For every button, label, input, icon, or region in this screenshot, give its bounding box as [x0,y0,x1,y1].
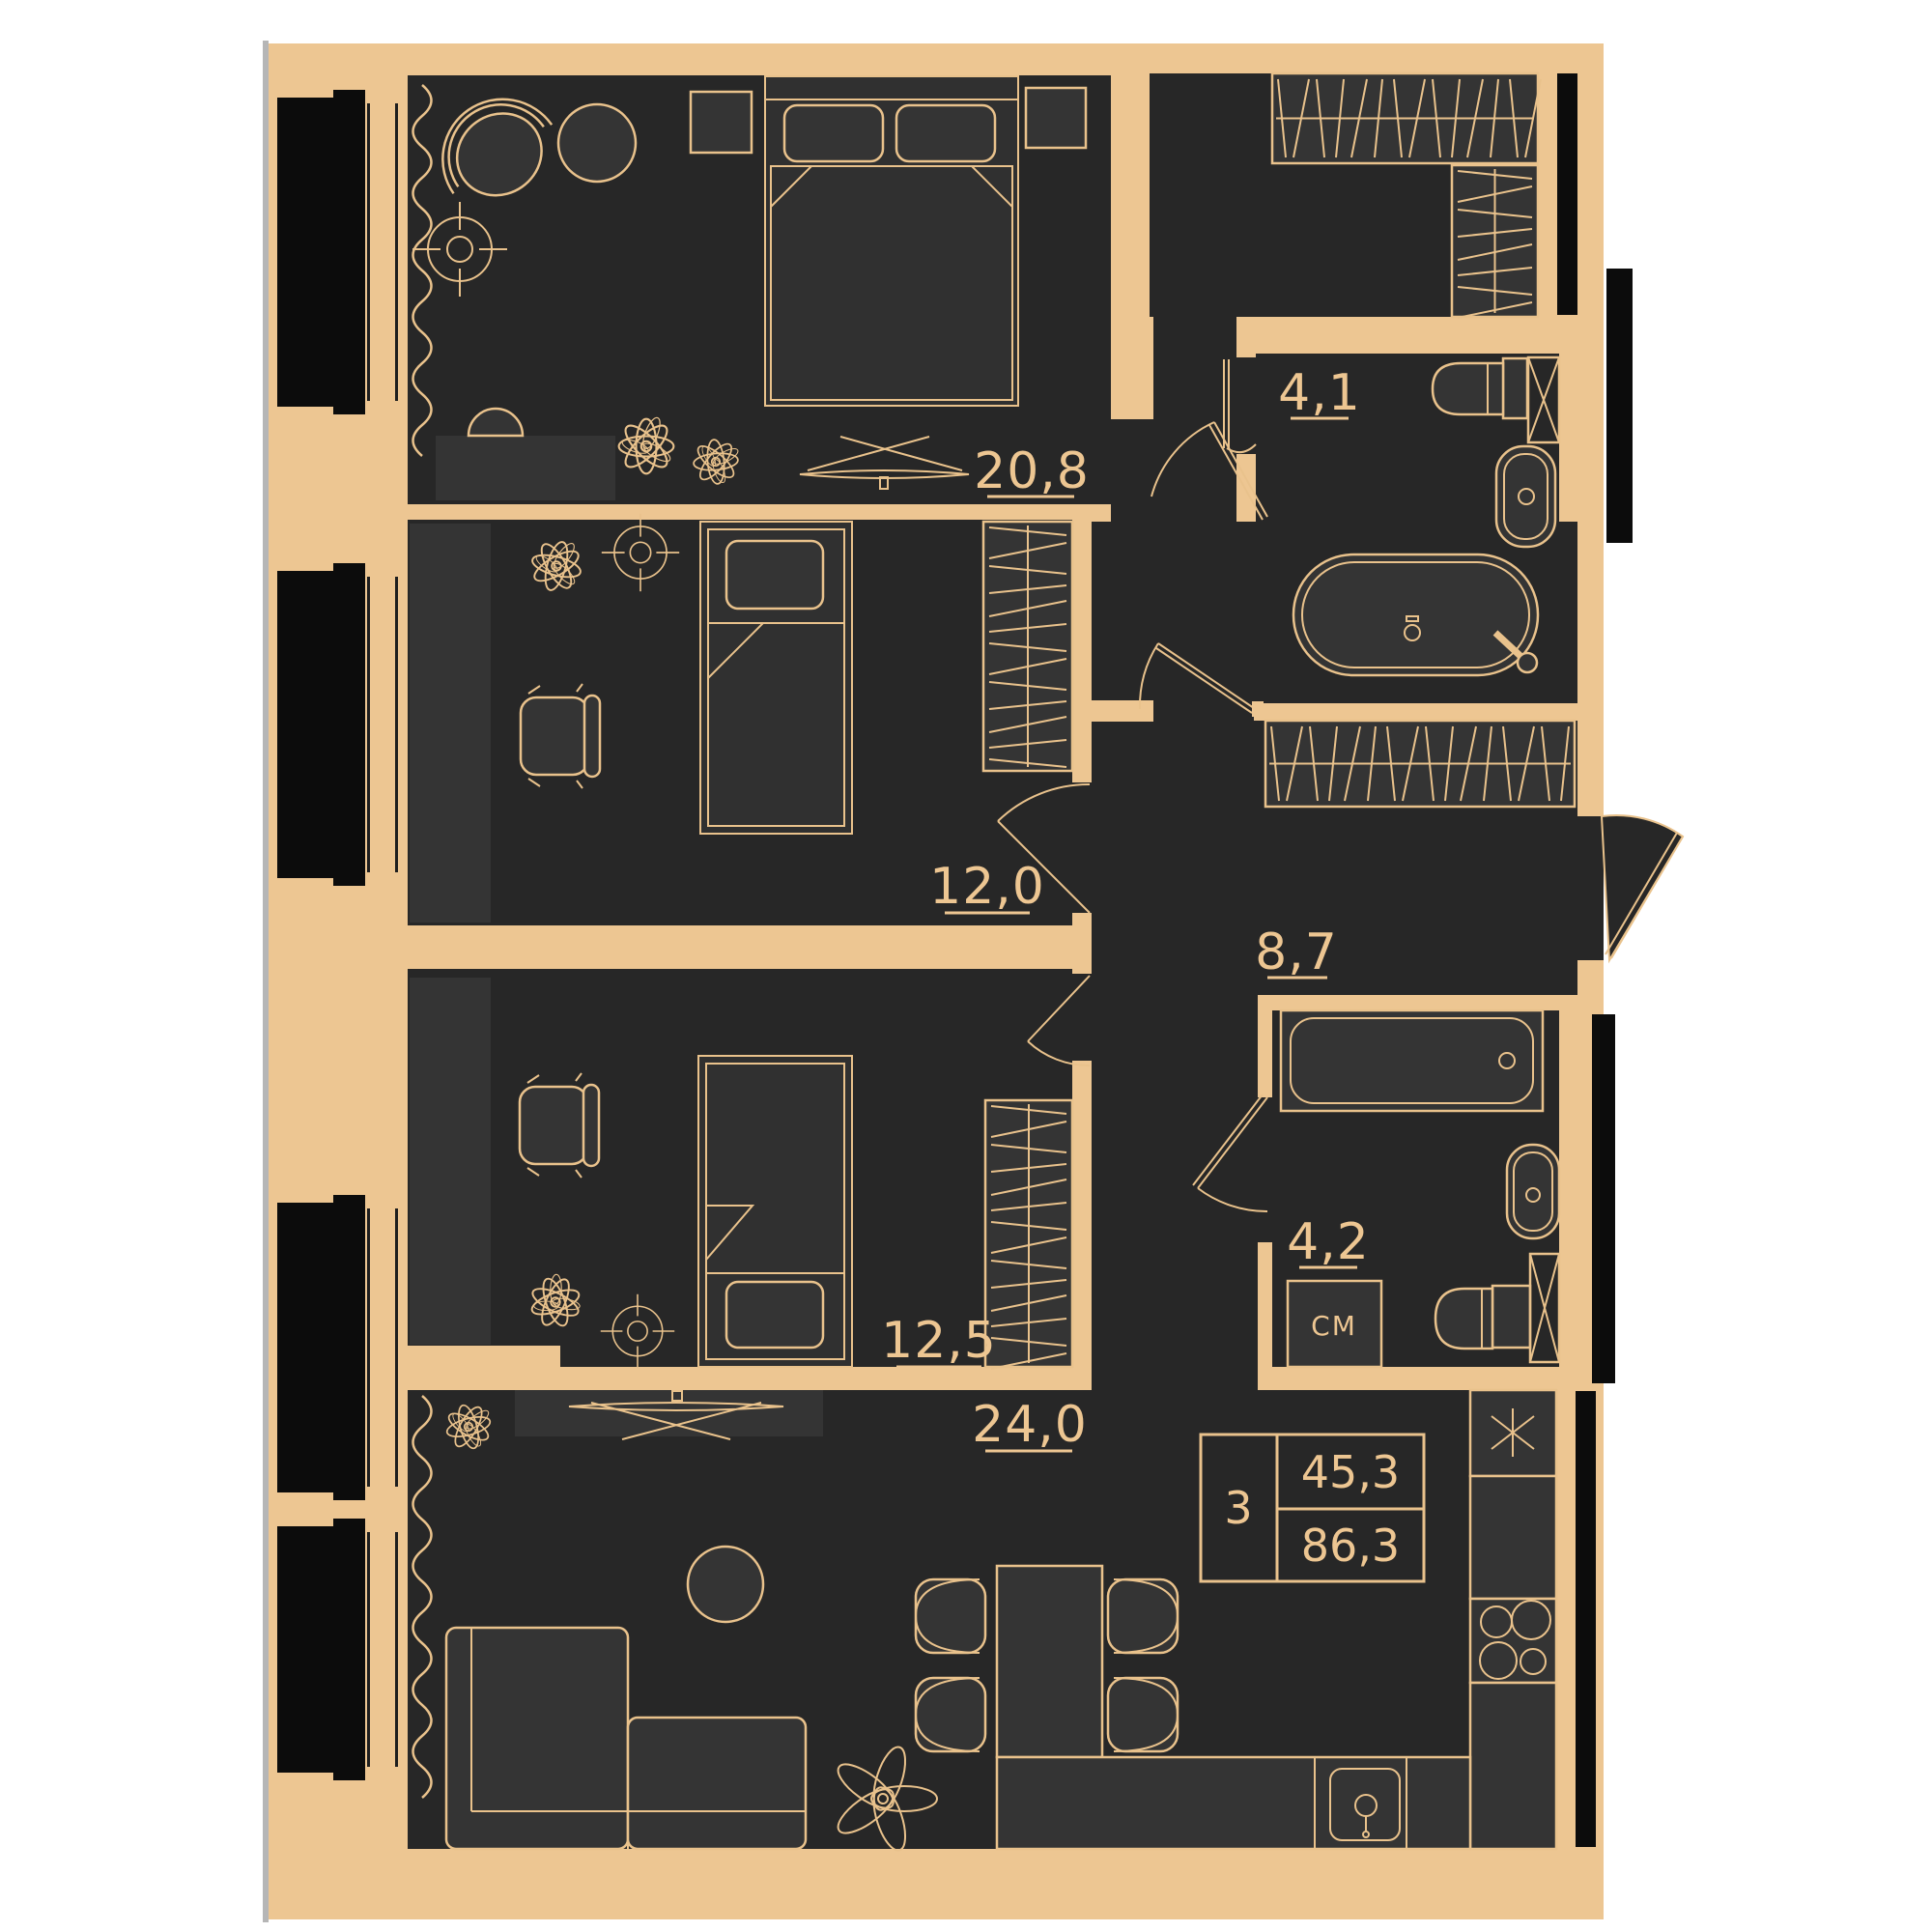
nightstand-right [1026,88,1086,148]
bathtub-rect [1281,1010,1543,1111]
area-label-room2: 12,5 [881,1312,997,1370]
area-label-bedroom: 20,8 [974,442,1090,500]
summary-rooms-count: 3 [1224,1482,1252,1534]
dining-chair-3 [1108,1579,1178,1653]
hallway-wardrobe [1265,721,1575,807]
right-slab-edge-middle [1592,1014,1615,1383]
kitchen-cabinet-bottom [1470,1683,1556,1849]
closet-wardrobe-top [1272,73,1541,163]
tv-living [515,1390,823,1439]
desk-room2 [410,978,491,1345]
chair-room1 [521,684,600,788]
pouf-table [558,104,636,182]
area-label-bathroom-1: 4,1 [1278,364,1361,422]
single-bed-room1 [700,522,852,834]
dining-chair-4 [1108,1678,1178,1751]
wardrobe-room2 [985,1100,1072,1369]
area-label-bathroom-2: 4,2 [1287,1213,1370,1271]
chair-room2 [520,1073,599,1178]
passage-floor [1092,995,1258,1390]
building-edge-line [263,41,269,1922]
area-label-room1: 12,0 [929,858,1045,916]
toilet-2 [1435,1286,1530,1349]
floor-plan-page: 20,8 [0,0,1932,1932]
coffee-table [688,1547,763,1622]
right-slab-edge-bottom [1576,1391,1596,1847]
right-slab-edge-top [1606,269,1633,543]
nightstand-left [691,92,752,153]
dining-chair-2 [916,1678,985,1751]
sink-1 [1496,446,1555,547]
dining-chair-1 [916,1579,985,1653]
single-bed-room2 [698,1056,852,1367]
bathtub-oval [1293,554,1538,675]
summary-living-area: 45,3 [1301,1446,1400,1498]
kitchen-counter [997,1757,1470,1849]
vent-shaft [1557,73,1577,315]
wardrobe-room1 [983,522,1072,771]
dining-table [997,1566,1102,1757]
desk-room1 [410,524,491,923]
kitchen-cabinet-tall [1470,1476,1556,1599]
summary-total-area: 86,3 [1301,1520,1400,1572]
desk-bedroom [436,436,615,500]
toilet-1 [1433,358,1527,418]
stove [1470,1599,1556,1683]
area-label-living: 24,0 [972,1396,1088,1454]
entry-door [1602,815,1683,960]
washing-machine: СМ [1288,1281,1381,1367]
area-label-hallway: 8,7 [1255,923,1338,981]
double-bed [765,76,1018,406]
sink-2 [1507,1145,1559,1238]
washing-machine-label: СМ [1311,1310,1357,1342]
closet-wardrobe-side [1452,165,1538,318]
hall-finger-floor [1111,419,1153,522]
floor-plan: 20,8 [0,0,1932,1932]
